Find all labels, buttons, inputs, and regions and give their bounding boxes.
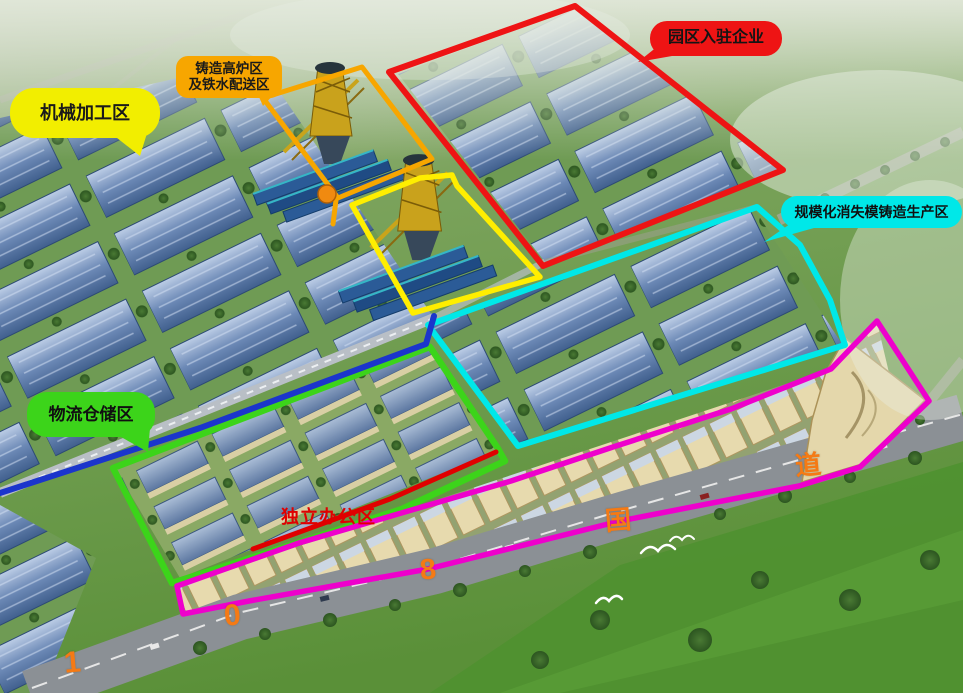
foundry-label-line2: 及铁水配送区 bbox=[189, 77, 270, 93]
foundry-connector bbox=[333, 200, 336, 224]
road-number-0: 0 bbox=[223, 598, 243, 633]
foundry-badge bbox=[318, 185, 336, 203]
road-number-8: 8 bbox=[419, 553, 438, 587]
zone-label-machining: 机械加工区 bbox=[10, 88, 160, 138]
zone-label-enterprises: 园区入驻企业 bbox=[650, 21, 782, 56]
zone-label-foundry: 铸造高炉区 及铁水配送区 bbox=[176, 56, 282, 98]
road-number-1: 1 bbox=[63, 645, 83, 680]
zone-label-logistics: 物流仓储区 bbox=[27, 392, 155, 437]
zone-label-office: 独立办公区 bbox=[281, 503, 376, 529]
foundry-label-line1: 铸造高炉区 bbox=[195, 61, 263, 77]
zone-label-lost-foam: 规模化消失模铸造生产区 bbox=[781, 196, 962, 228]
road-char-dao: 道 bbox=[793, 444, 822, 483]
road-char-guo: 国 bbox=[603, 499, 632, 538]
site-plan-rendering: 园区入驻企业 铸造高炉区 及铁水配送区 机械加工区 规模化消失模铸造生产区 物流… bbox=[0, 0, 963, 693]
